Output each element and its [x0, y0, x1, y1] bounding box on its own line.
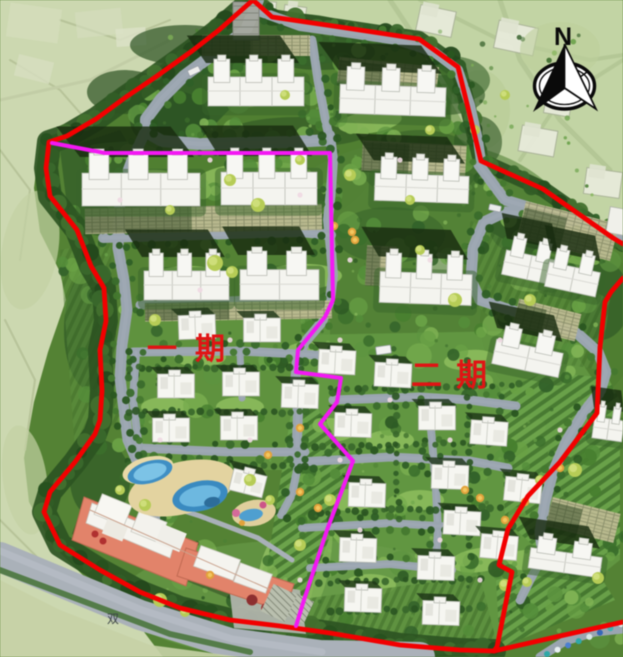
svg-text:N: N — [554, 23, 572, 51]
svg-text:一期: 一期 — [147, 333, 243, 366]
svg-text:二期: 二期 — [411, 358, 501, 393]
svg-text:双: 双 — [107, 612, 119, 626]
